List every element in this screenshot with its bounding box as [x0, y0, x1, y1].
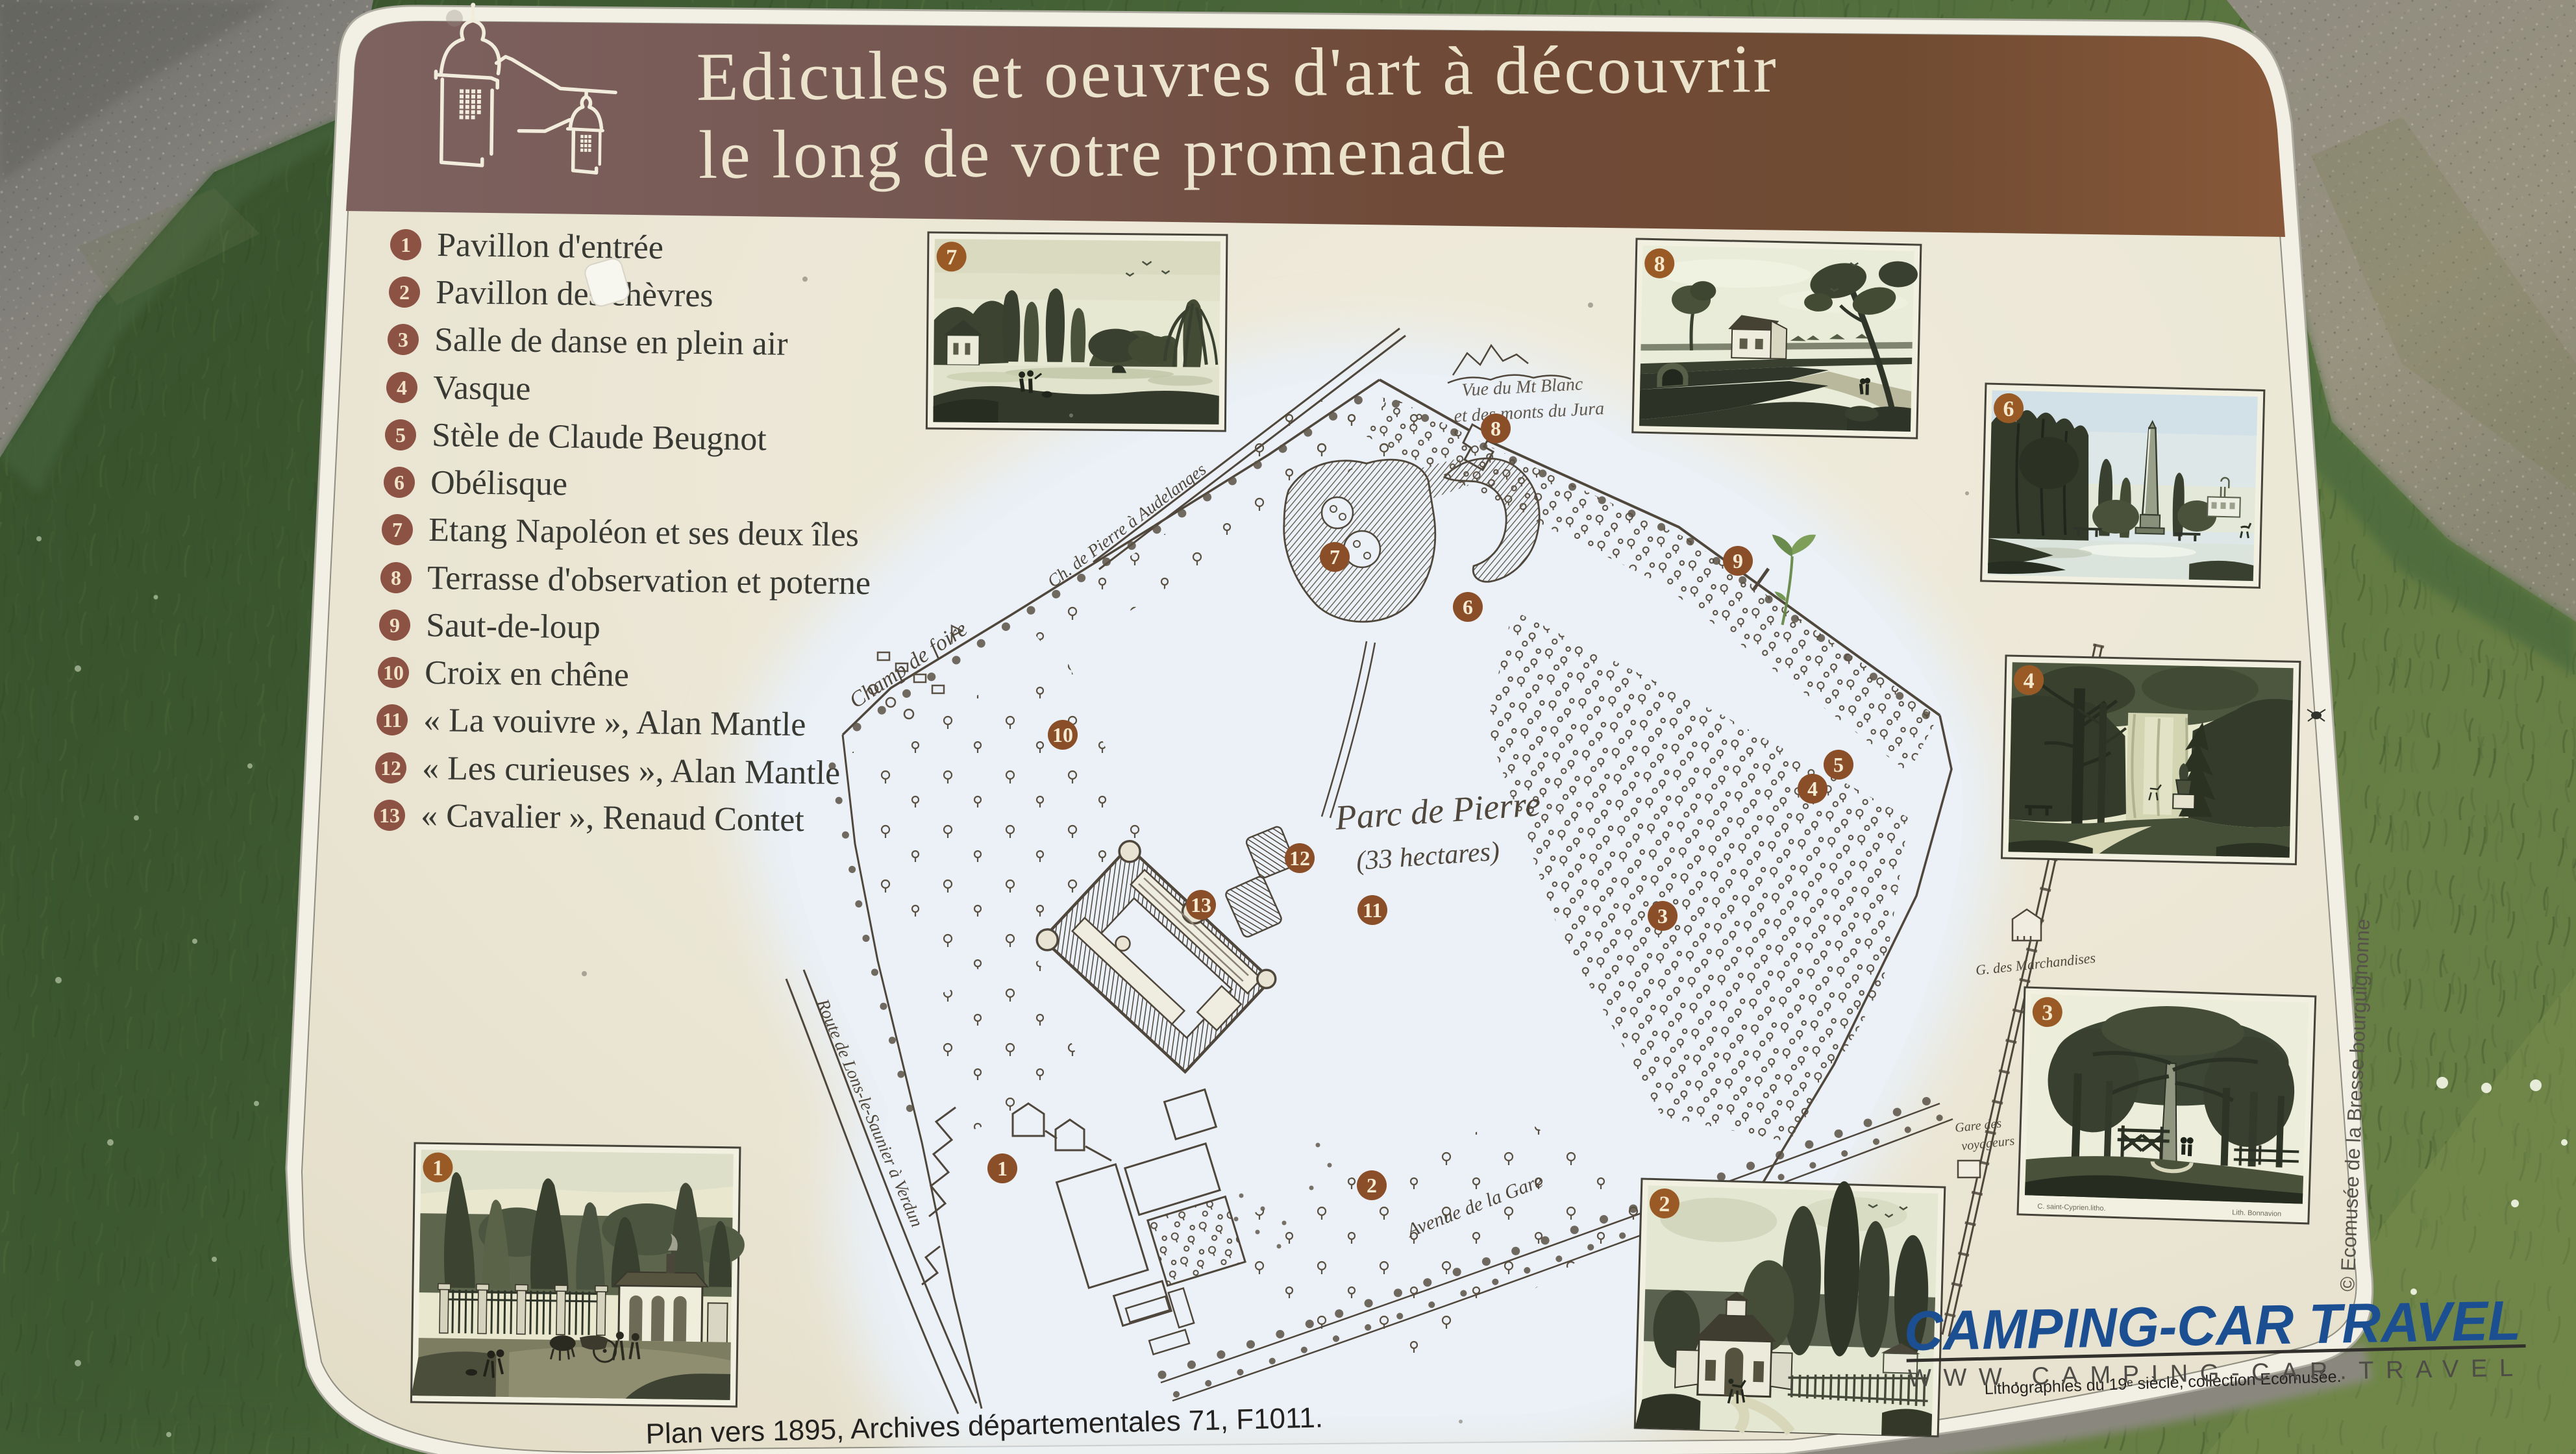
- svg-text:13: 13: [379, 804, 400, 827]
- svg-text:2: 2: [1367, 1174, 1377, 1197]
- svg-text:Obélisque: Obélisque: [430, 464, 568, 503]
- svg-text:4: 4: [397, 376, 407, 399]
- svg-text:Edicules et oeuvres d'art à dé: Edicules et oeuvres d'art à découvrir: [696, 31, 1778, 115]
- svg-text:Salle de danse en plein air: Salle de danse en plein air: [434, 321, 788, 363]
- svg-text:Croix en chêne: Croix en chêne: [425, 654, 629, 694]
- svg-text:7: 7: [946, 245, 957, 269]
- svg-text:6: 6: [394, 471, 404, 494]
- svg-text:le long de votre promenade: le long de votre promenade: [699, 112, 1509, 193]
- svg-text:« Les curieuses », Alan Mantle: « Les curieuses », Alan Mantle: [422, 750, 841, 792]
- svg-text:Lith. Bonnavion: Lith. Bonnavion: [2232, 1209, 2281, 1218]
- svg-text:Stèle de Claude Beugnot: Stèle de Claude Beugnot: [432, 417, 767, 458]
- svg-text:12: 12: [1289, 846, 1310, 870]
- svg-text:Terrasse d'observation et pote: Terrasse d'observation et poterne: [427, 560, 871, 602]
- svg-text:2: 2: [1659, 1192, 1670, 1216]
- svg-text:4: 4: [1807, 777, 1818, 800]
- svg-text:3: 3: [2042, 1001, 2053, 1026]
- svg-text:13: 13: [1191, 893, 1211, 917]
- svg-text:11: 11: [382, 708, 402, 732]
- svg-text:5: 5: [1833, 753, 1844, 776]
- svg-text:1: 1: [401, 233, 411, 256]
- svg-text:5: 5: [395, 423, 406, 447]
- svg-text:Etang Napoléon et ses deux île: Etang Napoléon et ses deux îles: [428, 511, 859, 554]
- svg-text:1: 1: [432, 1156, 444, 1180]
- svg-text:3: 3: [1657, 904, 1668, 928]
- svg-text:9: 9: [390, 613, 400, 637]
- svg-text:« Cavalier », Renaud Contet: « Cavalier », Renaud Contet: [421, 797, 805, 839]
- svg-text:10: 10: [383, 661, 404, 684]
- svg-text:« La vouivre », Alan Mantle: « La vouivre », Alan Mantle: [423, 702, 806, 743]
- svg-text:9: 9: [1733, 549, 1743, 573]
- svg-text:8: 8: [1491, 417, 1501, 440]
- svg-text:4: 4: [2023, 669, 2035, 693]
- svg-text:6: 6: [2003, 397, 2014, 421]
- svg-text:12: 12: [380, 756, 401, 780]
- svg-text:2: 2: [399, 280, 410, 304]
- svg-text:1: 1: [997, 1157, 1008, 1180]
- svg-text:3: 3: [398, 328, 408, 351]
- svg-text:6: 6: [1463, 595, 1473, 619]
- svg-text:Pavillon d'entrée: Pavillon d'entrée: [437, 227, 663, 266]
- svg-text:7: 7: [1330, 545, 1340, 569]
- svg-text:10: 10: [1052, 723, 1073, 746]
- svg-text:7: 7: [392, 518, 402, 541]
- svg-text:11: 11: [1363, 898, 1382, 922]
- svg-text:8: 8: [391, 566, 401, 589]
- svg-text:CAMPING-CAR TRAVEL: CAMPING-CAR TRAVEL: [1903, 1290, 2521, 1363]
- svg-text:Vasque: Vasque: [433, 369, 531, 408]
- svg-text:8: 8: [1653, 253, 1665, 277]
- svg-text:Saut-de-loup: Saut-de-loup: [426, 607, 601, 646]
- svg-text:Pavillon des chèvres: Pavillon des chèvres: [436, 274, 713, 314]
